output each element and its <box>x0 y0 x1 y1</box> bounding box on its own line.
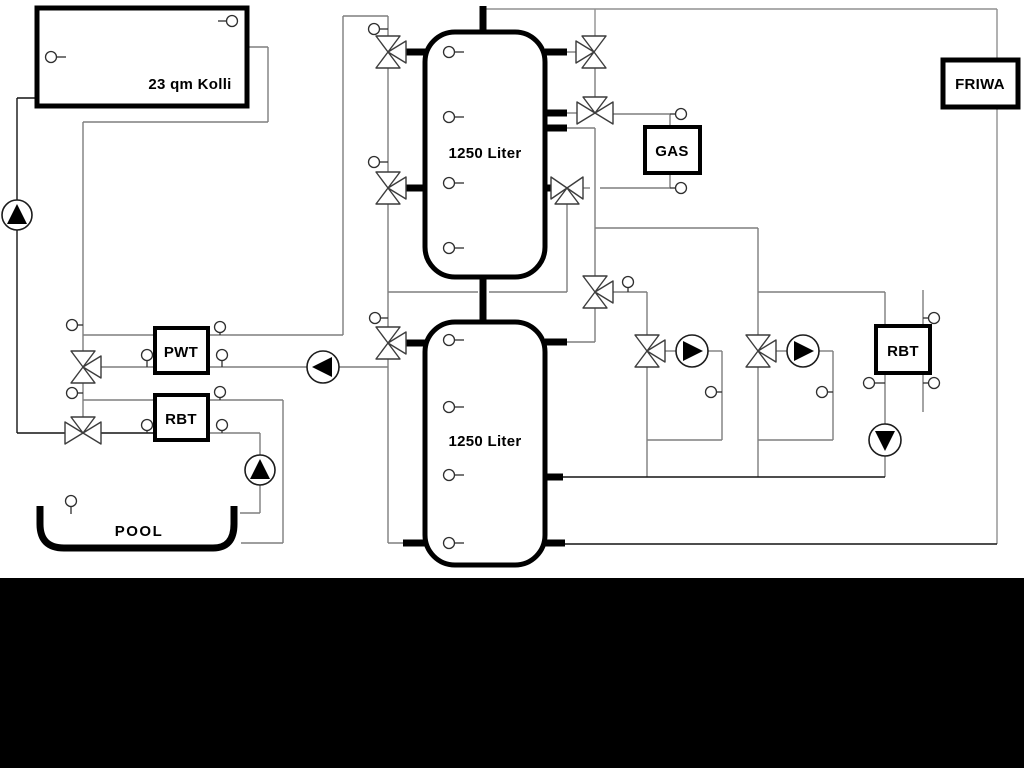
three-way-valve-icon <box>65 417 101 444</box>
pwt-label: PWT <box>164 344 198 361</box>
three-way-valve-icon <box>376 327 406 359</box>
three-way-valve-icon <box>577 97 613 124</box>
sensor-icon <box>66 496 77 515</box>
sensor-icon <box>217 420 228 434</box>
three-way-valve-icon <box>376 172 406 204</box>
sensor-icon <box>215 322 226 336</box>
three-way-valve-icon <box>376 36 406 68</box>
sensor-icon <box>864 378 886 389</box>
sensor-icon <box>370 313 389 324</box>
bottom-black-band <box>0 578 1024 768</box>
three-way-valve-icon <box>746 335 776 367</box>
pump-right-icon <box>787 335 819 367</box>
three-way-valve-icon <box>551 177 583 204</box>
gas-label: GAS <box>655 143 688 160</box>
buffer-tank-bottom-label: 1250 Liter <box>448 433 521 450</box>
sensor-icon <box>623 277 634 293</box>
rbt-left-label: RBT <box>165 411 197 428</box>
sensor-icon <box>670 109 687 120</box>
sensor-icon <box>923 313 940 324</box>
sensor-icon <box>923 378 940 389</box>
collector-label: 23 qm Kolli <box>148 76 231 93</box>
pump-down-icon <box>869 424 901 456</box>
sensor-icon <box>369 24 389 35</box>
friwa-label: FRIWA <box>955 76 1005 93</box>
pump-up-icon <box>245 455 275 485</box>
schematic-canvas: 23 qm Kolli 1250 Liter 1250 Liter PWT RB… <box>0 0 1024 768</box>
three-way-valve-icon <box>71 351 101 383</box>
sensor-icon <box>67 388 84 399</box>
sensor-icon <box>142 420 153 434</box>
sensor-icon <box>817 387 834 398</box>
sensor-icon <box>142 350 153 368</box>
sensor-icon <box>706 387 723 398</box>
buffer-tank-top-label: 1250 Liter <box>448 145 521 162</box>
sensor-icon <box>369 157 389 168</box>
three-way-valve-icon <box>635 335 665 367</box>
sensor-icon <box>670 183 687 194</box>
pump-left-icon <box>307 351 339 383</box>
pool-label: POOL <box>115 523 164 540</box>
three-way-valve-icon <box>583 276 613 308</box>
three-way-valve-icon <box>576 36 606 68</box>
sensor-icon <box>215 387 226 401</box>
schematic-drawing: 23 qm Kolli 1250 Liter 1250 Liter PWT RB… <box>0 0 1024 768</box>
rbt-right-label: RBT <box>887 343 919 360</box>
sensor-icon <box>217 350 228 368</box>
pump-up-icon <box>2 200 32 230</box>
sensor-icon <box>67 320 84 331</box>
pump-right-icon <box>676 335 708 367</box>
